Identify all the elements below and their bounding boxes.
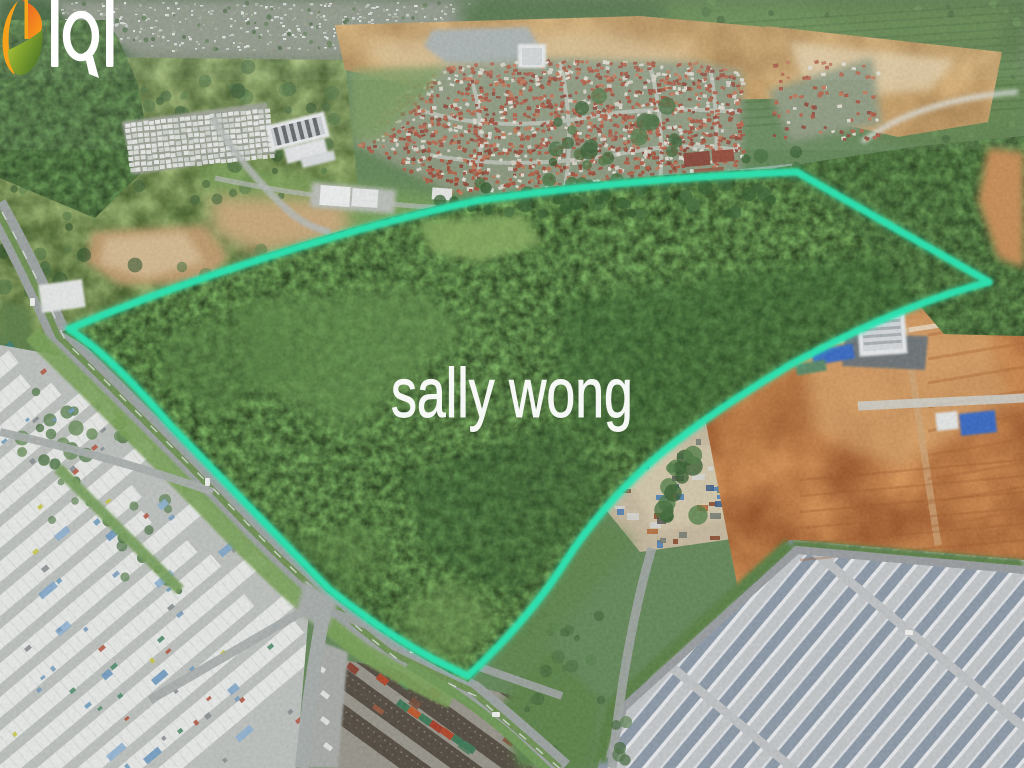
svg-text:sally wong: sally wong: [391, 354, 633, 432]
